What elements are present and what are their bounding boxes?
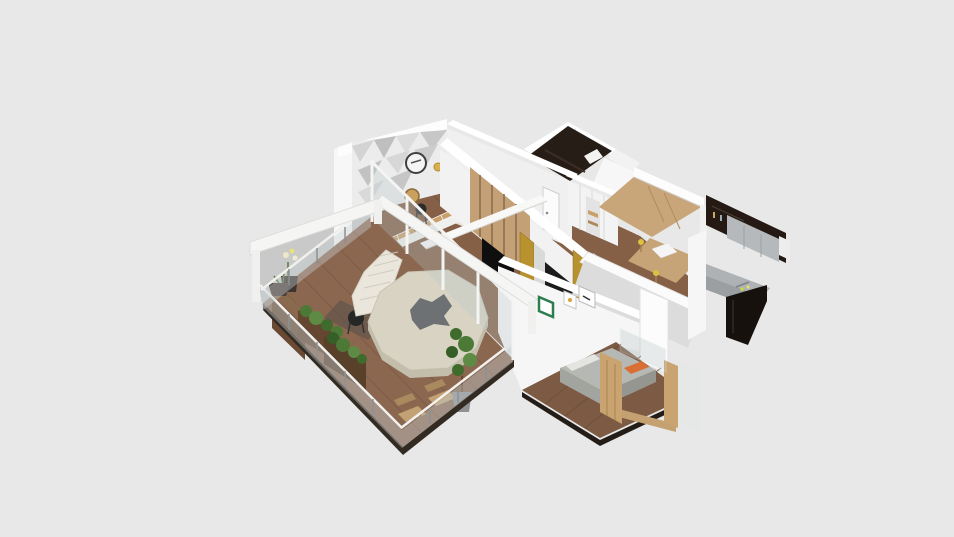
flower-bloom-2: [290, 249, 295, 254]
bed-partition-post: [600, 352, 622, 424]
pergola-post-a: [252, 250, 260, 302]
potted-plant-leaf-3: [446, 346, 458, 358]
dining-cushion-2: [653, 270, 659, 276]
potted-plant-leaf-5: [452, 364, 464, 376]
floorplan-svg[interactable]: [0, 0, 954, 537]
hedge-leaf-8: [357, 354, 367, 364]
art-frame-sun-dot: [568, 298, 572, 302]
hedge-leaf-2: [309, 311, 323, 325]
kitchen-speck-1: [740, 287, 744, 291]
pergola-post-d: [374, 200, 382, 224]
pergola-post-c: [528, 301, 536, 334]
entry-door-handle: [546, 212, 549, 215]
hedge-leaf-6: [336, 338, 350, 352]
wall-clock-large: [406, 153, 426, 173]
flower-bloom-3: [293, 256, 298, 261]
kitchen-speck-2: [747, 286, 750, 289]
potted-plant-leaf-4: [463, 353, 477, 367]
kitchen-white-return: [688, 230, 706, 340]
bedroom-right-wall: [678, 360, 700, 432]
potted-plant-leaf-1: [450, 328, 462, 340]
dining-cushion-1: [638, 239, 644, 245]
floorplan-3d-viewport[interactable]: [0, 0, 954, 537]
flower-bloom-1: [283, 252, 289, 258]
potted-plant-leaf-2: [458, 336, 474, 352]
